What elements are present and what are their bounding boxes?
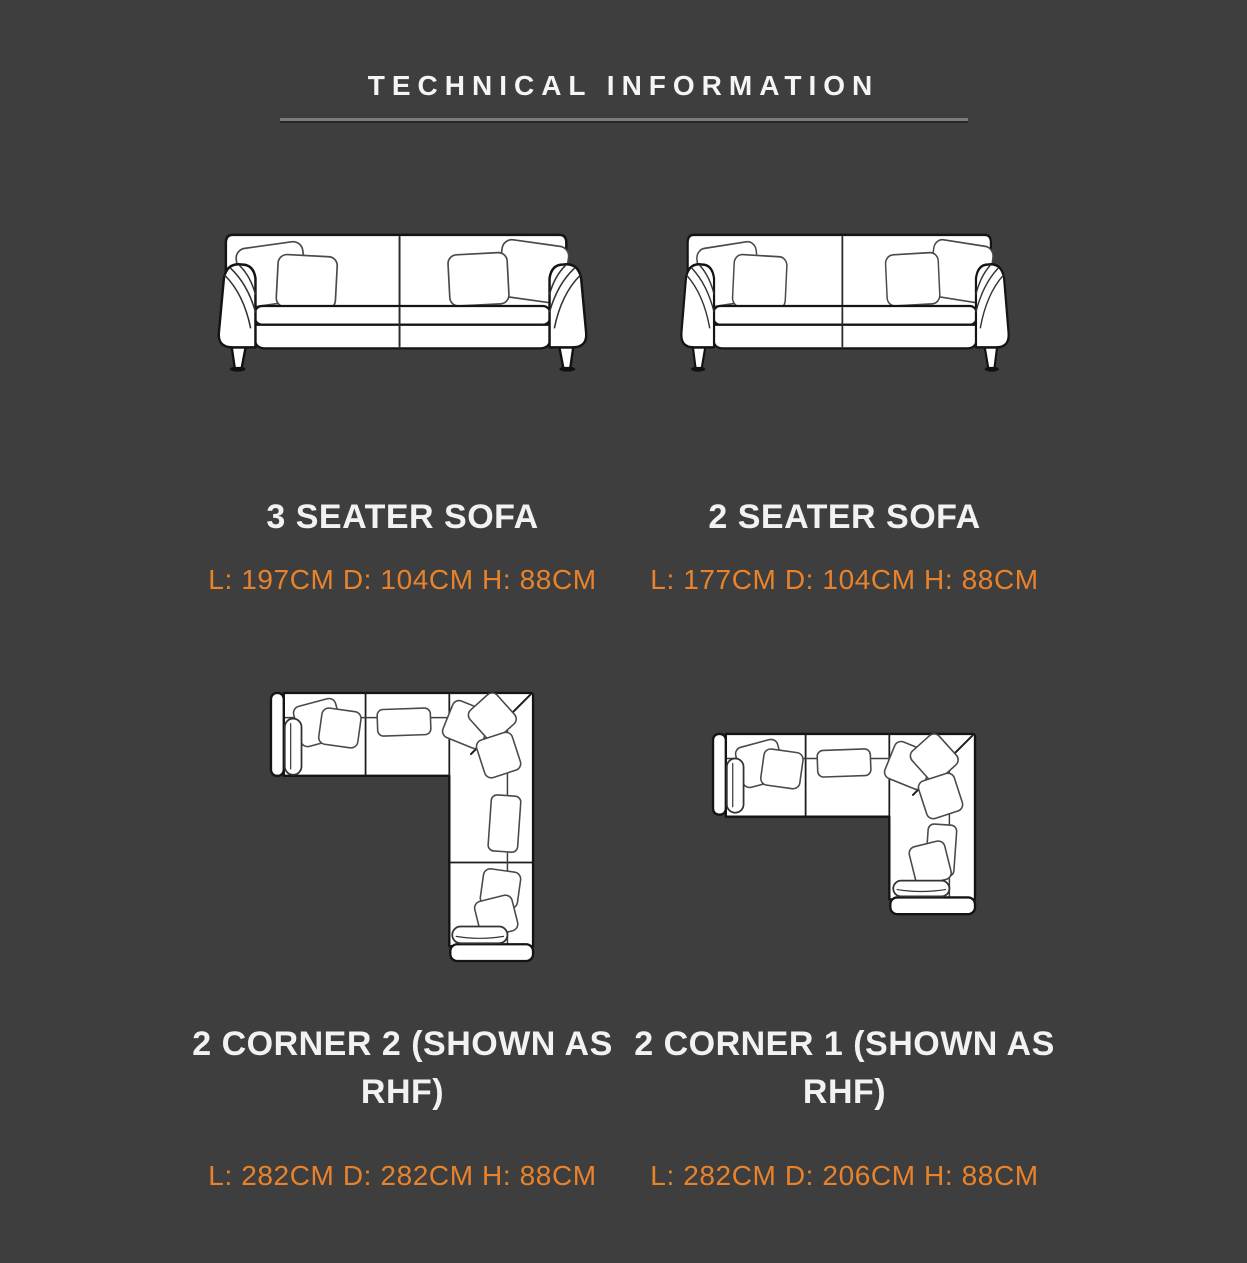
product-name: 2 SEATER SOFA: [708, 493, 980, 541]
left-arm: [713, 734, 726, 815]
diagram-slot-2-seater: [678, 229, 1012, 377]
product-dimensions: L: 282CM D: 282CM H: 88CM: [208, 1160, 596, 1192]
page-title: TECHNICAL INFORMATION: [0, 68, 1247, 104]
column-left: 3 SEATER SOFA L: 197CM D: 104CM H: 88CM: [188, 121, 618, 1192]
diagram-slot-2-corner-1: [711, 686, 979, 968]
product-dimensions: L: 177CM D: 104CM H: 88CM: [650, 564, 1038, 596]
diagram-slot-2-corner-2: [269, 686, 537, 968]
technical-information-panel: TECHNICAL INFORMATION 3 SEATER SOFA L: 1…: [0, 0, 1247, 1263]
bottom-arm: [450, 944, 533, 961]
left-arm: [270, 693, 283, 776]
product-dimensions: L: 197CM D: 104CM H: 88CM: [208, 564, 596, 596]
corner-sofa-2-corner-1-top-view-diagram: [711, 729, 979, 924]
product-name: 3 SEATER SOFA: [266, 493, 538, 541]
product-grid: 3 SEATER SOFA L: 197CM D: 104CM H: 88CM: [0, 121, 1247, 1192]
bottom-arm: [890, 898, 975, 915]
product-name: 2 CORNER 1 (SHOWN AS RHF): [630, 1020, 1060, 1117]
sofa-2-seater-front-view-diagram: [678, 229, 1012, 377]
column-right: 2 SEATER SOFA L: 177CM D: 104CM H: 88CM: [630, 121, 1060, 1192]
diagram-slot-3-seater: [215, 229, 590, 377]
corner-sofa-2-corner-2-top-view-diagram: [269, 688, 537, 966]
product-dimensions: L: 282CM D: 206CM H: 88CM: [650, 1160, 1038, 1192]
sofa-3-seater-front-view-diagram: [215, 229, 590, 377]
product-name: 2 CORNER 2 (SHOWN AS RHF): [188, 1020, 618, 1117]
technical-information-header: TECHNICAL INFORMATION: [0, 0, 1247, 121]
